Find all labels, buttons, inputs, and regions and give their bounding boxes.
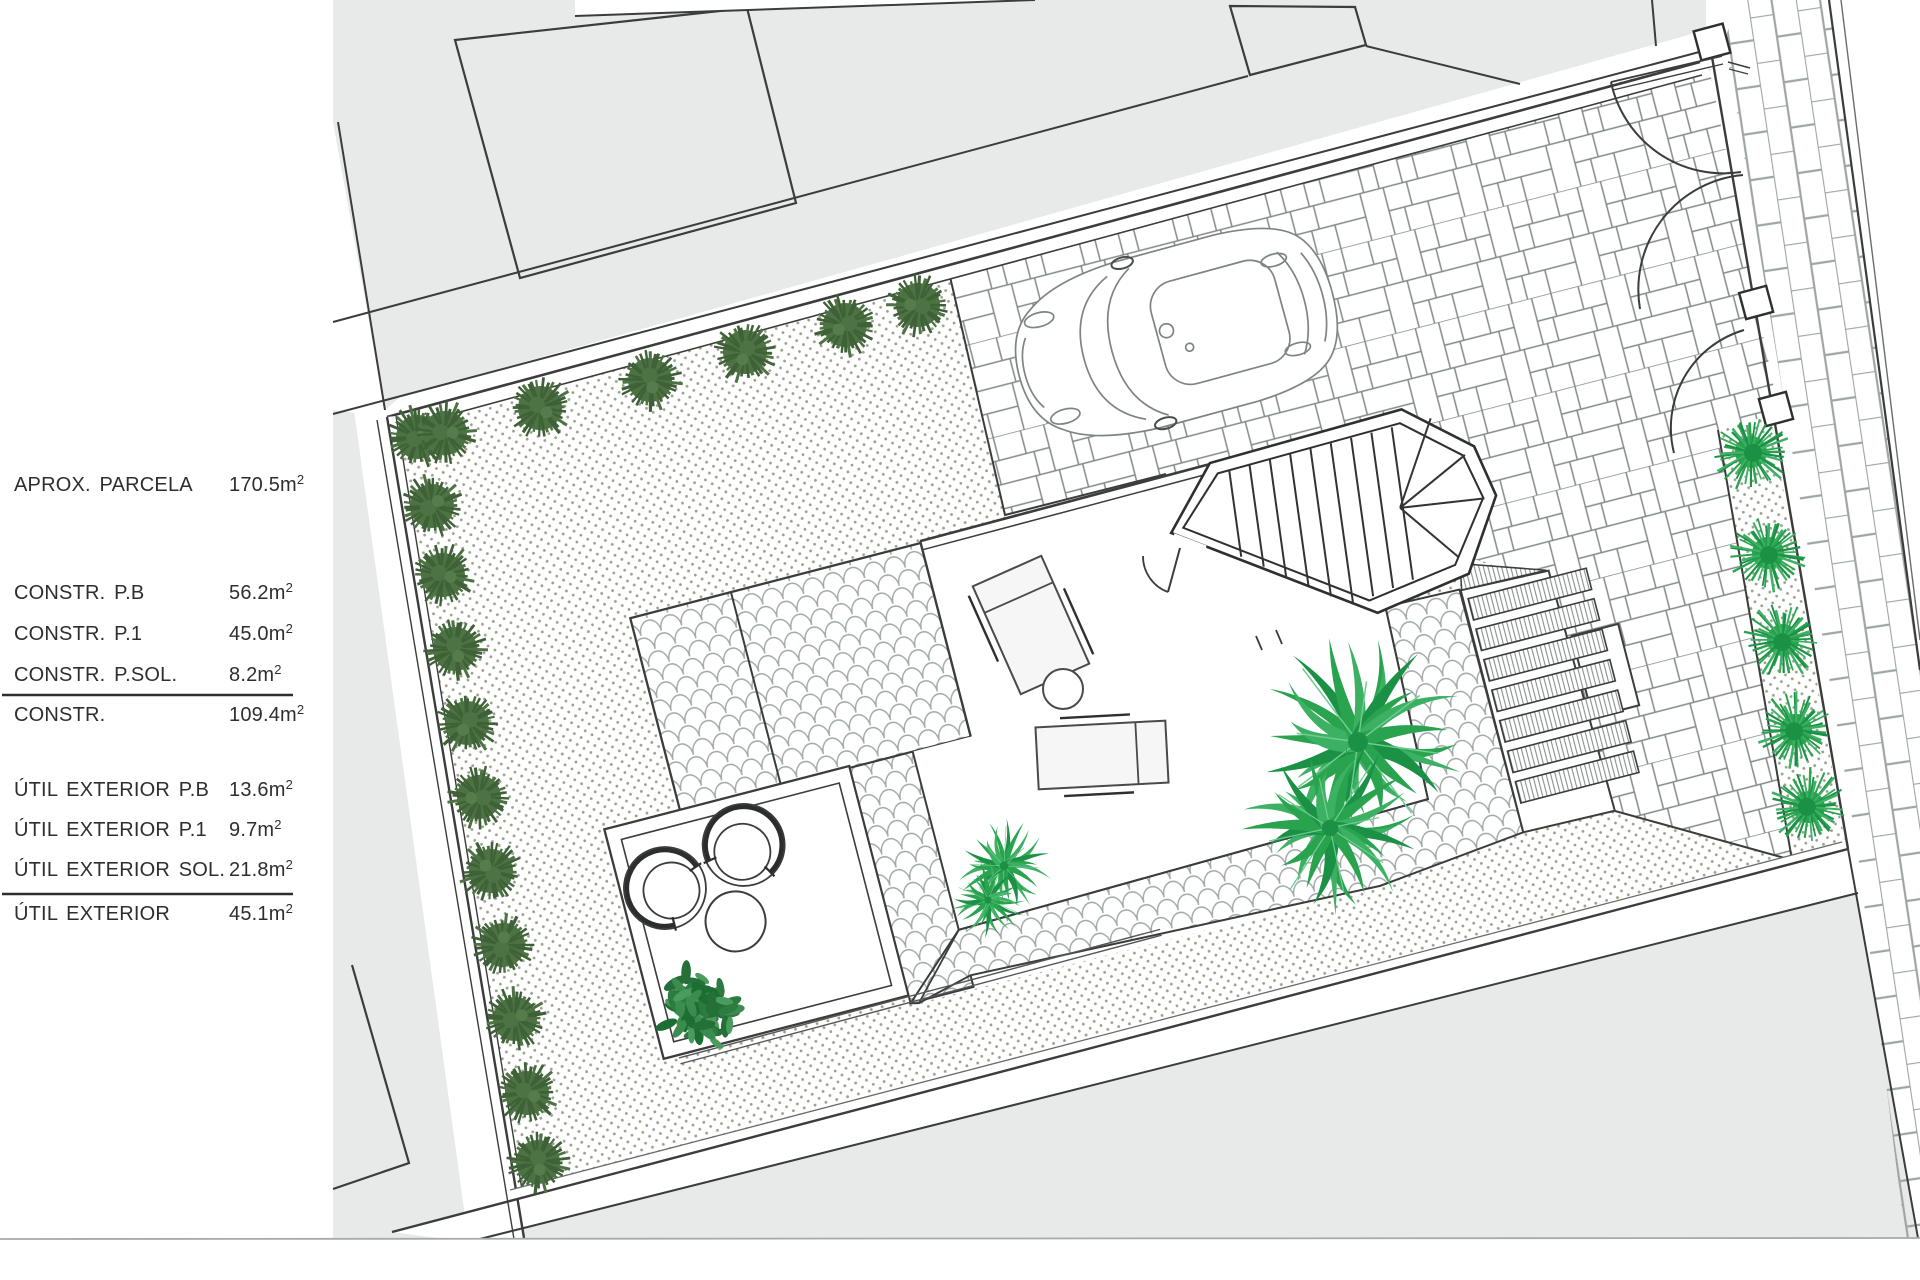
svg-text:13.6m2: 13.6m2 bbox=[229, 777, 293, 801]
svg-text:ÚTIL EXTERIOR SOL.: ÚTIL EXTERIOR SOL. bbox=[14, 858, 225, 881]
svg-text:ÚTIL EXTERIOR P.B: ÚTIL EXTERIOR P.B bbox=[14, 778, 209, 801]
svg-text:9.7m2: 9.7m2 bbox=[229, 817, 282, 841]
svg-text:CONSTR. P.1: CONSTR. P.1 bbox=[14, 623, 142, 645]
svg-text:45.0m2: 45.0m2 bbox=[229, 621, 293, 645]
svg-text:56.2m2: 56.2m2 bbox=[229, 580, 293, 604]
svg-text:109.4m2: 109.4m2 bbox=[229, 702, 304, 726]
svg-text:CONSTR. P.SOL.: CONSTR. P.SOL. bbox=[14, 664, 177, 686]
svg-text:ÚTIL EXTERIOR P.1: ÚTIL EXTERIOR P.1 bbox=[14, 818, 207, 841]
svg-text:170.5m2: 170.5m2 bbox=[229, 472, 304, 496]
svg-text:21.8m2: 21.8m2 bbox=[229, 857, 293, 881]
svg-text:APROX. PARCELA: APROX. PARCELA bbox=[14, 474, 193, 496]
svg-text:45.1m2: 45.1m2 bbox=[229, 901, 293, 925]
svg-text:CONSTR.: CONSTR. bbox=[14, 704, 105, 726]
svg-text:8.2m2: 8.2m2 bbox=[229, 662, 282, 686]
svg-text:ÚTIL EXTERIOR: ÚTIL EXTERIOR bbox=[14, 902, 170, 925]
svg-text:CONSTR. P.B: CONSTR. P.B bbox=[14, 582, 144, 604]
